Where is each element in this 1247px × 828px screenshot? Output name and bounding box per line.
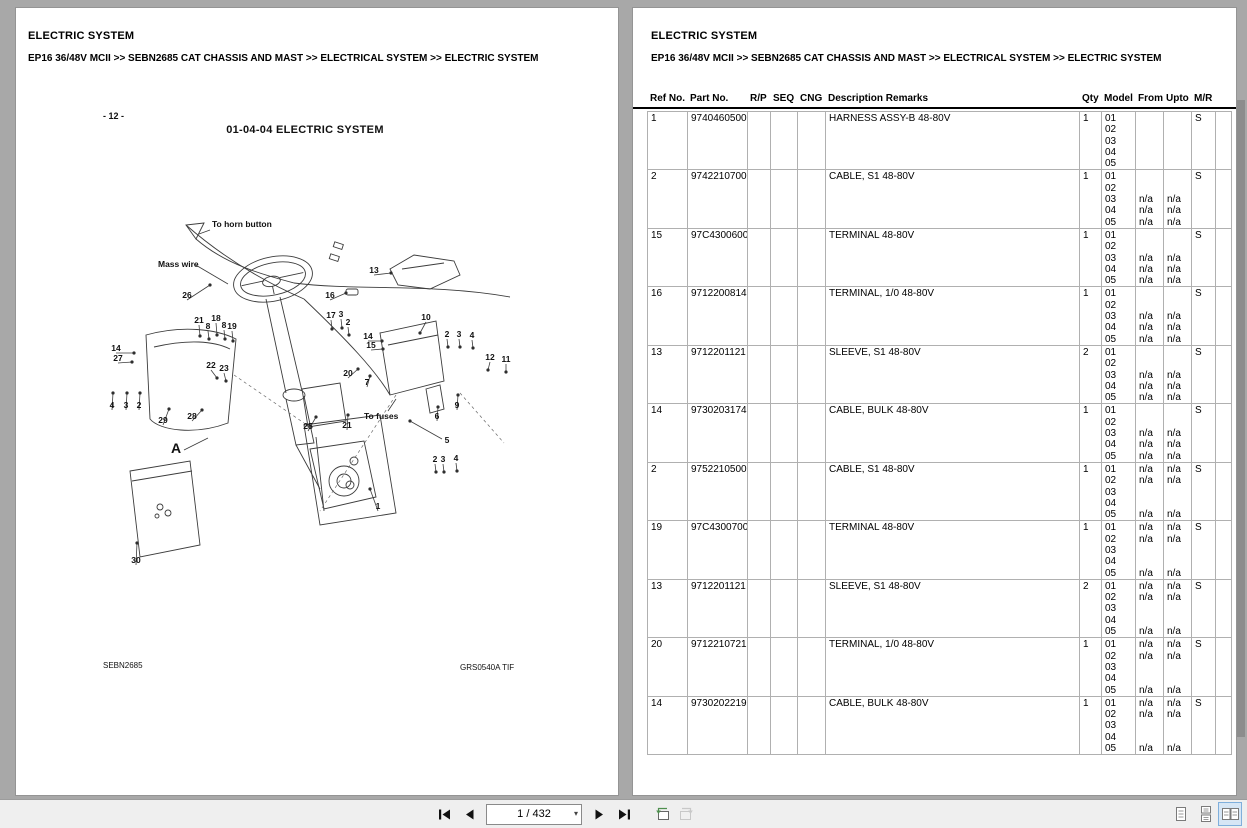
cell-mr: S [1192, 287, 1216, 345]
cell-desc: CABLE, S1 48-80V [826, 462, 1080, 520]
diagram-callout: 30 [131, 555, 141, 565]
cell-qty: 1 [1080, 404, 1102, 462]
diagram-callout: 27 [113, 353, 123, 363]
cell-qty: 1 [1080, 638, 1102, 696]
cell-from: n/an/a n/a [1136, 462, 1164, 520]
table-row: 1997C4300700TERMINAL 48-80V10102030405n/… [648, 521, 1232, 579]
cell-mr: S [1192, 521, 1216, 579]
cell-cng [798, 170, 826, 228]
cell-qty: 1 [1080, 112, 1102, 170]
diagram-callout: 2 [137, 400, 142, 410]
cell-cng [798, 287, 826, 345]
cell-seq [771, 638, 798, 696]
cell-ref: 15 [648, 228, 688, 286]
cell-mr: S [1192, 345, 1216, 403]
cell-qty: 1 [1080, 696, 1102, 754]
cell-upto: n/an/an/a [1164, 170, 1192, 228]
cell-from: n/an/an/a [1136, 170, 1164, 228]
col-cng: CNG [798, 93, 826, 104]
last-page-icon [617, 808, 632, 821]
cell-desc: SLEEVE, S1 48-80V [826, 579, 1080, 637]
table-row: 29752210500CABLE, S1 48-80V10102030405n/… [648, 462, 1232, 520]
parts-table: 19740460500HARNESS ASSY-B 48-80V10102030… [647, 111, 1232, 755]
diagram-callout: 3 [339, 309, 344, 319]
cell-seq [771, 112, 798, 170]
cell-upto: n/an/a n/a [1164, 638, 1192, 696]
last-page-button[interactable] [613, 803, 635, 825]
cell-cng [798, 696, 826, 754]
cell-upto: n/an/a n/a [1164, 696, 1192, 754]
diagram-callout: 13 [369, 265, 379, 275]
diagram-callout: 1 [376, 501, 381, 511]
facing-pages-view-button[interactable] [1219, 803, 1241, 825]
cell-desc: CABLE, BULK 48-80V [826, 404, 1080, 462]
continuous-view-icon [1196, 805, 1215, 823]
cell-desc: CABLE, BULK 48-80V [826, 696, 1080, 754]
cell-part: 97C4300600 [688, 228, 748, 286]
diagram-callout: 2 [433, 454, 438, 464]
diagram-callout: 11 [502, 354, 511, 364]
diagram-callout: 2 [346, 317, 351, 327]
cell-upto: n/an/a n/a [1164, 521, 1192, 579]
next-view-button[interactable] [676, 803, 698, 825]
cell-from: n/an/an/a [1136, 228, 1164, 286]
cell-spacer [1216, 696, 1232, 754]
cell-part: 9712200814 [688, 287, 748, 345]
diagram-callout: 15 [366, 340, 376, 350]
cell-qty: 1 [1080, 462, 1102, 520]
cell-from: n/an/an/a [1136, 404, 1164, 462]
table-row: 29742210700CABLE, S1 48-80V10102030405 n… [648, 170, 1232, 228]
cell-rp [748, 228, 771, 286]
diagram-callout: 4 [110, 400, 115, 410]
diagram-callout: 2 [445, 329, 450, 339]
table-row: 169712200814TERMINAL, 1/0 48-80V10102030… [648, 287, 1232, 345]
cell-qty: 2 [1080, 345, 1102, 403]
col-seq: SEQ [771, 93, 798, 104]
cell-spacer [1216, 345, 1232, 403]
cell-from: n/an/a n/a [1136, 638, 1164, 696]
cell-upto: n/an/an/a [1164, 287, 1192, 345]
construction-lines [234, 375, 504, 511]
cell-desc: TERMINAL, 1/0 48-80V [826, 287, 1080, 345]
cell-seq [771, 404, 798, 462]
diagram-callout: 16 [325, 290, 335, 300]
previous-view-button[interactable] [651, 803, 673, 825]
cell-mr: S [1192, 462, 1216, 520]
cell-ref: 20 [648, 638, 688, 696]
cell-from: n/an/a n/a [1136, 521, 1164, 579]
cell-part: 9730203174 [688, 404, 748, 462]
cell-part: 9712201121 [688, 345, 748, 403]
single-page-view-icon [1171, 805, 1190, 823]
cell-spacer [1216, 638, 1232, 696]
cell-ref: 1 [648, 112, 688, 170]
cell-cng [798, 112, 826, 170]
cell-cng [798, 404, 826, 462]
next-view-icon [678, 806, 696, 822]
diagram-callout: 4 [470, 330, 475, 340]
col-ref: Ref No. [648, 93, 688, 104]
cell-cng [798, 521, 826, 579]
diagram-callout: To horn button [212, 219, 272, 229]
page-number-combobox[interactable]: 1 / 432 ▾ [486, 804, 582, 825]
cell-desc: TERMINAL 48-80V [826, 521, 1080, 579]
diagram-callout: 14 [111, 343, 121, 353]
cell-spacer [1216, 462, 1232, 520]
cell-spacer [1216, 228, 1232, 286]
cell-spacer [1216, 170, 1232, 228]
cell-seq [771, 345, 798, 403]
bottom-toolbar: 1 / 432 ▾ [0, 799, 1247, 828]
cell-model: 0102030405 [1102, 579, 1136, 637]
page-indicator: 1 / 432 [517, 808, 551, 820]
single-page-view-button[interactable] [1169, 803, 1191, 825]
diagram-callout: 22 [206, 360, 216, 370]
cell-mr: S [1192, 170, 1216, 228]
cell-spacer [1216, 521, 1232, 579]
vertical-scrollbar-thumb[interactable] [1237, 100, 1245, 737]
diagram-callout: 3 [457, 329, 462, 339]
diagram-callout: 3 [441, 454, 446, 464]
cell-cng [798, 579, 826, 637]
cell-rp [748, 345, 771, 403]
cell-seq [771, 170, 798, 228]
cell-ref: 2 [648, 170, 688, 228]
cell-seq [771, 696, 798, 754]
cell-rp [748, 404, 771, 462]
breadcrumb: EP16 36/48V MCII >> SEBN2685 CAT CHASSIS… [651, 53, 1162, 64]
cell-model: 0102030405 [1102, 696, 1136, 754]
diagram-callout: 29 [158, 415, 168, 425]
cell-cng [798, 228, 826, 286]
cell-seq [771, 228, 798, 286]
cell-upto: n/an/a n/a [1164, 462, 1192, 520]
cell-desc: TERMINAL, 1/0 48-80V [826, 638, 1080, 696]
cell-model: 0102030405 [1102, 462, 1136, 520]
parts-table-body: 19740460500HARNESS ASSY-B 48-80V10102030… [648, 112, 1232, 755]
diagram-callout: 21 [194, 315, 204, 325]
combobox-caret-icon: ▾ [574, 809, 578, 818]
cell-model: 0102030405 [1102, 228, 1136, 286]
diagram-callout: 26 [182, 290, 192, 300]
cell-model: 0102030405 [1102, 345, 1136, 403]
cell-spacer [1216, 287, 1232, 345]
diagram-callout: A [171, 440, 181, 456]
cell-desc: TERMINAL 48-80V [826, 228, 1080, 286]
table-row: 1597C4300600TERMINAL 48-80V10102030405 n… [648, 228, 1232, 286]
cell-ref: 14 [648, 696, 688, 754]
steering-wheel [229, 249, 316, 309]
diagram-svg: - 12 - 01-04-04 ELECTRIC SYSTEM [58, 93, 566, 755]
diagram-callout: 9 [455, 400, 460, 410]
cell-rp [748, 521, 771, 579]
diagram-page-number: - 12 - [103, 111, 124, 121]
diagram-callout: 3 [124, 400, 129, 410]
col-upto: Upto [1164, 93, 1192, 104]
next-page-button[interactable] [588, 803, 610, 825]
diagram-title: 01-04-04 ELECTRIC SYSTEM [226, 124, 384, 136]
cell-upto: n/an/an/a [1164, 404, 1192, 462]
cell-rp [748, 112, 771, 170]
first-page-icon [437, 808, 452, 821]
diagram-callout: Mass wire [158, 259, 199, 269]
cell-ref: 16 [648, 287, 688, 345]
cell-qty: 2 [1080, 579, 1102, 637]
page-title: ELECTRIC SYSTEM [28, 30, 134, 42]
page-navigation-group: 1 / 432 ▾ [433, 803, 698, 825]
facing-pages-view-icon [1221, 805, 1240, 823]
cell-model: 0102030405 [1102, 521, 1136, 579]
callouts-layer: To horn buttonMass wire26218188191427161… [110, 219, 511, 565]
cell-from [1136, 112, 1164, 170]
cell-ref: 2 [648, 462, 688, 520]
cell-from: n/an/a n/a [1136, 579, 1164, 637]
table-row: 19740460500HARNESS ASSY-B 48-80V10102030… [648, 112, 1232, 170]
cell-qty: 1 [1080, 228, 1102, 286]
col-qty: Qty [1080, 93, 1102, 104]
page-layout-group [1169, 803, 1241, 825]
cell-from: n/an/a n/a [1136, 696, 1164, 754]
diagram-callout: 23 [219, 363, 229, 373]
cell-mr: S [1192, 579, 1216, 637]
cell-spacer [1216, 404, 1232, 462]
cell-model: 0102030405 [1102, 170, 1136, 228]
col-desc: Description Remarks [826, 93, 1080, 104]
cell-rp [748, 638, 771, 696]
table-row: 209712210721TERMINAL, 1/0 48-80V10102030… [648, 638, 1232, 696]
previous-view-icon [653, 806, 671, 822]
right-page: ELECTRIC SYSTEM EP16 36/48V MCII >> SEBN… [633, 8, 1236, 795]
table-row: 149730202219CABLE, BULK 48-80V1010203040… [648, 696, 1232, 754]
cell-part: 9712210721 [688, 638, 748, 696]
cell-seq [771, 579, 798, 637]
previous-page-button[interactable] [458, 803, 480, 825]
instrument-cover [390, 255, 460, 289]
col-model: Model [1102, 93, 1136, 104]
cell-from: n/an/an/a [1136, 345, 1164, 403]
cell-part: 97C4300700 [688, 521, 748, 579]
table-row: 149730203174CABLE, BULK 48-80V1010203040… [648, 404, 1232, 462]
cell-qty: 1 [1080, 170, 1102, 228]
diagram-callout: 28 [187, 411, 197, 421]
diagram-footer-right: GRS0540A TIF [460, 663, 514, 672]
cell-mr: S [1192, 638, 1216, 696]
cell-ref: 13 [648, 345, 688, 403]
diagram-callout: 5 [445, 435, 450, 445]
cell-part: 9742210700 [688, 170, 748, 228]
diagram-callout: 4 [454, 453, 459, 463]
diagram-footer-left: SEBN2685 [103, 661, 143, 670]
cell-model: 0102030405 [1102, 638, 1136, 696]
col-mr: M/R [1192, 93, 1216, 104]
cell-from: n/an/an/a [1136, 287, 1164, 345]
bracket-panel [380, 321, 444, 413]
cell-part: 9712201121 [688, 579, 748, 637]
col-part: Part No. [688, 93, 748, 104]
cell-rp [748, 579, 771, 637]
diagram-callout: 19 [227, 321, 237, 331]
cell-cng [798, 638, 826, 696]
col-from: From [1136, 93, 1164, 104]
bottom-left-panel [130, 461, 200, 557]
cell-rp [748, 287, 771, 345]
next-page-icon [593, 808, 606, 821]
diagram-callout: 20 [343, 368, 353, 378]
pdf-viewer-window: { "left_page": { "title": "ELECTRIC SYST… [0, 0, 1247, 828]
cell-mr: S [1192, 696, 1216, 754]
diagram-callout: 8 [222, 320, 227, 330]
cell-model: 0102030405 [1102, 287, 1136, 345]
cell-desc: SLEEVE, S1 48-80V [826, 345, 1080, 403]
cell-upto: n/an/an/a [1164, 345, 1192, 403]
cell-qty: 1 [1080, 287, 1102, 345]
col-rp: R/P [748, 93, 771, 104]
cell-seq [771, 287, 798, 345]
diagram-callout: 21 [342, 420, 352, 430]
lower-panel [304, 415, 396, 525]
cell-cng [798, 345, 826, 403]
cell-model: 0102030405 [1102, 404, 1136, 462]
cell-rp [748, 696, 771, 754]
cell-rp [748, 462, 771, 520]
diagram-callout: 8 [206, 321, 211, 331]
cell-model: 0102030405 [1102, 112, 1136, 170]
previous-page-icon [463, 808, 476, 821]
diagram-callout: 10 [421, 312, 431, 322]
table-header-rule [633, 107, 1236, 109]
table-row: 139712201121SLEEVE, S1 48-80V20102030405… [648, 345, 1232, 403]
cell-part: 9730202219 [688, 696, 748, 754]
cell-desc: CABLE, S1 48-80V [826, 170, 1080, 228]
cell-mr: S [1192, 228, 1216, 286]
first-page-button[interactable] [433, 803, 455, 825]
cell-cng [798, 462, 826, 520]
cell-mr: S [1192, 112, 1216, 170]
cell-ref: 19 [648, 521, 688, 579]
diagram-callout: To fuses [364, 411, 399, 421]
diagram-callout: 7 [365, 377, 370, 387]
table-column-headers: Ref No. Part No. R/P SEQ CNG Description… [648, 93, 1232, 104]
diagram-callout: 25 [303, 421, 313, 431]
cell-ref: 14 [648, 404, 688, 462]
cell-upto: n/an/an/a [1164, 228, 1192, 286]
continuous-view-button[interactable] [1194, 803, 1216, 825]
breadcrumb: EP16 36/48V MCII >> SEBN2685 CAT CHASSIS… [28, 53, 539, 64]
cell-seq [771, 521, 798, 579]
cell-part: 9752210500 [688, 462, 748, 520]
cell-spacer [1216, 579, 1232, 637]
cell-upto [1164, 112, 1192, 170]
cell-mr: S [1192, 404, 1216, 462]
cell-part: 9740460500 [688, 112, 748, 170]
cell-desc: HARNESS ASSY-B 48-80V [826, 112, 1080, 170]
cell-ref: 13 [648, 579, 688, 637]
cell-seq [771, 462, 798, 520]
cell-qty: 1 [1080, 521, 1102, 579]
diagram-callout: 6 [435, 411, 440, 421]
table-row: 139712201121SLEEVE, S1 48-80V20102030405… [648, 579, 1232, 637]
page-title: ELECTRIC SYSTEM [651, 30, 757, 42]
left-page: ELECTRIC SYSTEM EP16 36/48V MCII >> SEBN… [16, 8, 618, 795]
diagram-callout: 17 [326, 310, 336, 320]
cell-spacer [1216, 112, 1232, 170]
cell-upto: n/an/a n/a [1164, 579, 1192, 637]
cell-rp [748, 170, 771, 228]
diagram-callout: 12 [485, 352, 495, 362]
steering-column [266, 297, 376, 509]
diagram-callout: 18 [211, 313, 221, 323]
